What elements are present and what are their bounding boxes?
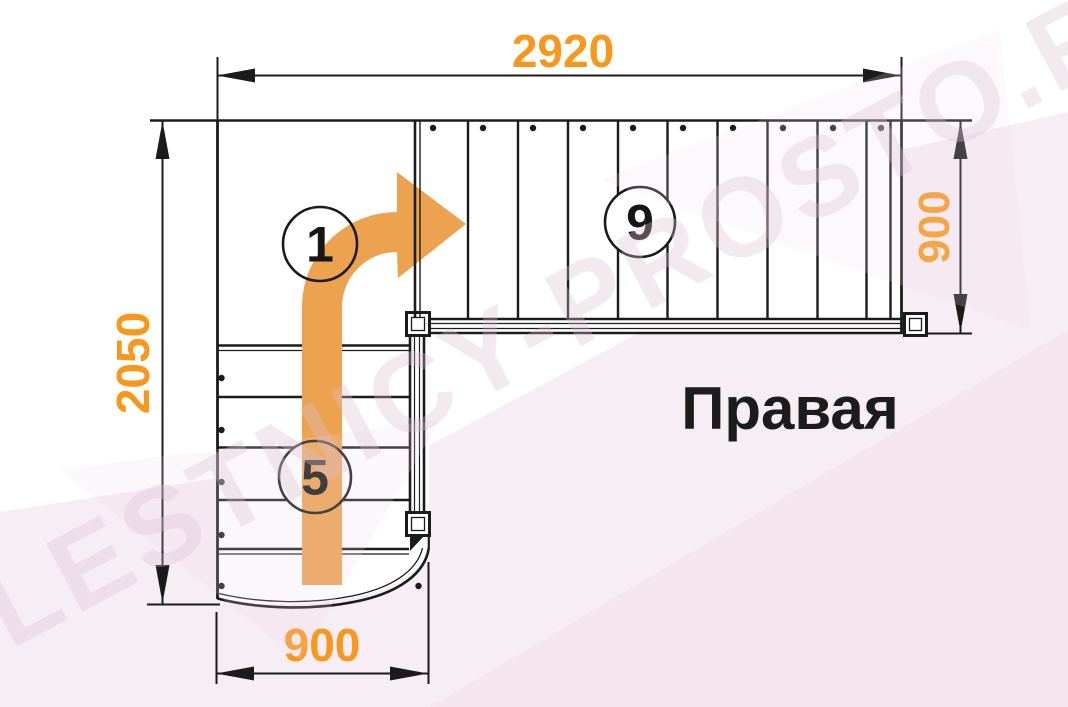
lower-flight-marker-label: 5	[301, 450, 329, 506]
platform-marker-label: 1	[306, 217, 334, 273]
dimension-top-value: 2920	[512, 25, 614, 77]
background	[0, 0, 1068, 707]
dimension-bottom-value: 900	[284, 619, 361, 671]
dimension-right-value: 900	[910, 190, 959, 263]
stair-side-label: Правая	[681, 375, 899, 442]
staircase-plan-diagram: 1 5 9 2920 2050	[0, 0, 1068, 707]
upper-flight-marker-label: 9	[626, 195, 654, 251]
dimension-left-value: 2050	[107, 312, 159, 414]
